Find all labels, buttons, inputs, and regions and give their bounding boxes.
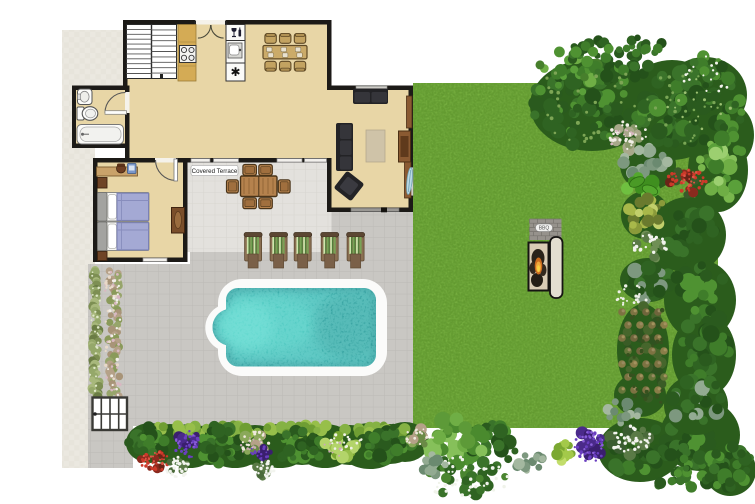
svg-text:Covered Terrace: Covered Terrace [192,168,238,175]
svg-text:✱: ✱ [230,65,240,79]
svg-text:BBQ: BBQ [539,226,550,232]
